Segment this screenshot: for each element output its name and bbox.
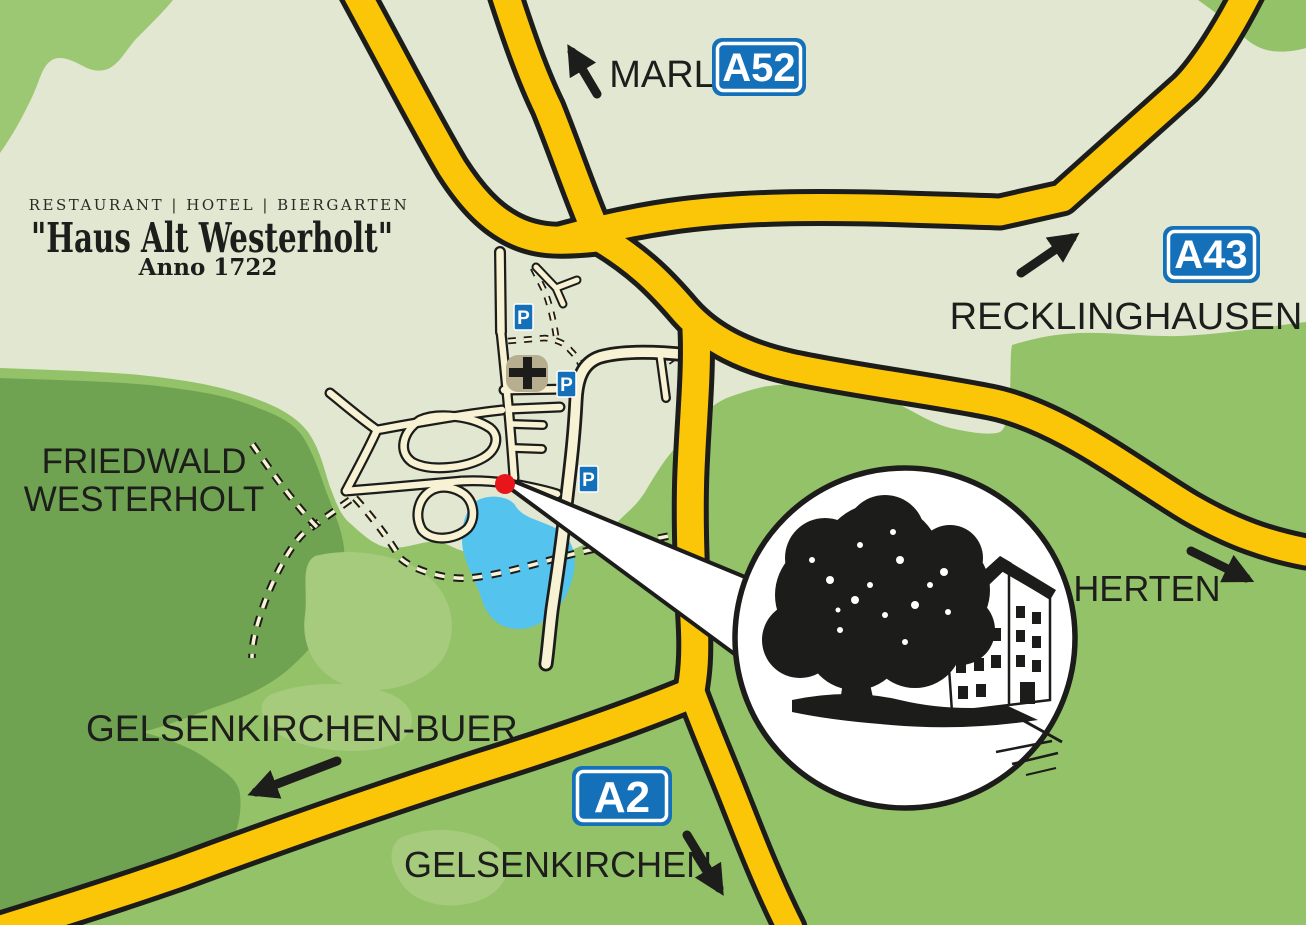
title-anno: Anno 1722 — [138, 254, 278, 281]
road-south — [690, 330, 696, 696]
motorway-badge-a2: A2 — [572, 766, 672, 826]
motorway-badge-a43: A43 — [1163, 226, 1260, 283]
parking-letter: P — [582, 470, 595, 491]
label-friedwald-line1: FRIEDWALD — [42, 442, 247, 481]
parking-letter: P — [560, 375, 573, 396]
label-marl: MARL — [609, 54, 715, 96]
label-herten: HERTEN — [1073, 568, 1220, 609]
title-tagline: RESTAURANT | HOTEL | BIERGARTEN — [29, 196, 410, 214]
motorway-badge-a52: A52 — [712, 38, 806, 96]
directions-map: P P P MARL RECKLINGHAUSEN HERTEN GELSENK… — [0, 0, 1306, 925]
label-gelsenkirchen-buer: GELSENKIRCHEN-BUER — [86, 708, 518, 749]
badge-a2-text: A2 — [594, 773, 650, 822]
parking-sign-3: P — [579, 466, 598, 492]
parking-sign-1: P — [514, 304, 533, 330]
church — [506, 355, 548, 392]
label-recklinghausen: RECKLINGHAUSEN — [950, 296, 1303, 338]
parking-letter: P — [517, 308, 530, 329]
location-dot — [495, 474, 515, 494]
map-canvas: P P P MARL RECKLINGHAUSEN HERTEN GELSENK… — [0, 0, 1306, 925]
label-gelsenkirchen: GELSENKIRCHEN — [404, 844, 712, 885]
badge-a43-text: A43 — [1174, 233, 1247, 277]
label-friedwald-line2: WESTERHOLT — [24, 480, 264, 519]
badge-a52-text: A52 — [722, 46, 795, 90]
parking-sign-2: P — [557, 371, 576, 397]
